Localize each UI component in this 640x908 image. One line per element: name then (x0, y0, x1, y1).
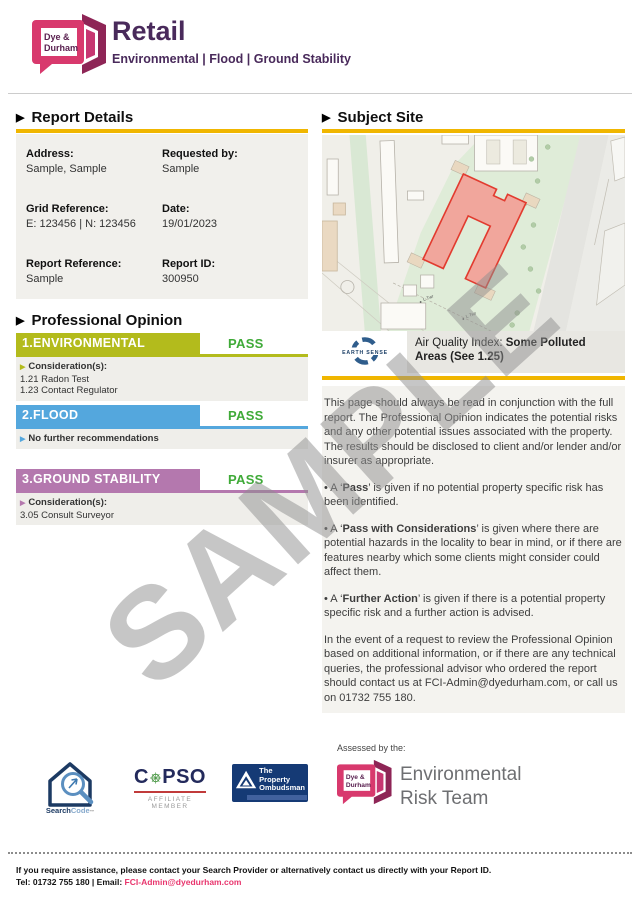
opinion-title: 2.FLOOD (16, 405, 200, 426)
dye-durham-logo-icon: Dye & Durham (32, 12, 108, 76)
note-item: 1.21 Radon Test (20, 374, 302, 386)
header-divider (8, 93, 632, 94)
guidance-bullet-pass-considerations: • A ‘Pass with Considerations’ is given … (324, 522, 623, 580)
field-label: Report Reference: (26, 258, 162, 270)
logo-text-line2: Durham (44, 43, 78, 53)
note-lead: ▶Consideration(s): (20, 497, 302, 510)
field-value: Sample (162, 163, 298, 175)
arrow-right-icon: ▶ (16, 314, 24, 327)
dye-durham-logo: Dye & Durham (32, 12, 108, 81)
status-badge: PASS (200, 469, 308, 490)
air-quality-index: Air Quality Index: Some Polluted Areas (… (407, 331, 625, 373)
opinion-notes-flood: ▶No further recommendations (16, 429, 308, 450)
report-details-heading-label: Report Details (31, 109, 133, 126)
property-ombudsman-top: The Property Ombudsman (235, 767, 305, 793)
opinion-section-environmental: 1.ENVIRONMENTAL PASS ▶Consideration(s): … (16, 333, 308, 401)
guidance-intro: This page should always be read in conju… (324, 396, 623, 469)
searchcode-logo-icon: SearchCode™ (38, 757, 102, 815)
copso-rule (134, 791, 206, 793)
copso-wordmark: C PSO (134, 766, 206, 789)
air-quality-label: Air Quality Index: (415, 337, 506, 349)
property-ombudsman-logo: The Property Ombudsman (232, 764, 308, 802)
earth-sense-logo: EARTH SENSE (322, 331, 407, 373)
field-value: E: 123456 | N: 123456 (26, 218, 162, 230)
field-label: Address: (26, 148, 162, 160)
environmental-risk-team-label: Environmental Risk Team (400, 763, 521, 811)
copso-subtitle: AFFILIATE MEMBER (134, 796, 206, 810)
svg-text:Dye &: Dye & (346, 774, 365, 781)
opinion-bar-ground-stability: 3.GROUND STABILITY PASS (16, 469, 308, 493)
logo-text-line1: Dye & (44, 32, 70, 42)
contact-email-link[interactable]: FCI-Admin@dyedurham.com (125, 877, 242, 887)
property-ombudsman-triangle-icon (235, 769, 257, 791)
subject-site-heading-label: Subject Site (337, 109, 423, 126)
report-details-heading: ▶ Report Details (16, 108, 308, 126)
arrow-right-icon: ▶ (16, 111, 24, 124)
yellow-accent-bar (16, 129, 308, 133)
footer-divider (8, 852, 632, 854)
field-address: Address: Sample, Sample (26, 148, 162, 175)
subject-site-heading: ▶ Subject Site (322, 108, 625, 126)
field-date: Date: 19/01/2023 (162, 203, 298, 230)
footer-fine-print: If you require assistance, please contac… (16, 864, 491, 888)
dye-durham-footer-logo-icon: Dye & Durham (337, 757, 393, 807)
field-grid-reference: Grid Reference: E: 123456 | N: 123456 (26, 203, 162, 230)
guidance-outro: In the event of a request to review the … (324, 633, 623, 706)
field-label: Date: (162, 203, 298, 215)
copso-logo: C PSO AFFILIATE MEMBER (134, 766, 206, 810)
earth-sense-logo-icon: EARTH SENSE (332, 337, 398, 367)
field-label: Report ID: (162, 258, 298, 270)
right-column: ▶ Subject Site (322, 108, 625, 713)
arrow-right-icon: ▶ (20, 364, 25, 371)
opinion-notes-environmental: ▶Consideration(s): 1.21 Radon Test 1.23 … (16, 357, 308, 401)
guidance-bullet-further-action: • A ‘Further Action’ is given if there i… (324, 592, 623, 621)
svg-text:Durham: Durham (346, 782, 371, 789)
opinion-section-ground-stability: 3.GROUND STABILITY PASS ▶Consideration(s… (16, 469, 308, 525)
svg-text:SearchCode™: SearchCode™ (46, 806, 94, 815)
status-badge: PASS (200, 333, 308, 354)
yellow-accent-bar (322, 376, 625, 380)
arrow-right-icon: ▶ (322, 111, 330, 124)
professional-opinion-heading-label: Professional Opinion (31, 312, 182, 329)
page-title: Retail (112, 16, 186, 47)
professional-opinion-heading: ▶ Professional Opinion (16, 311, 308, 329)
searchcode-logo: SearchCode™ (38, 757, 102, 820)
field-label: Grid Reference: (26, 203, 162, 215)
assistance-note: If you require assistance, please contac… (16, 864, 491, 876)
page-subtitle: Environmental | Flood | Ground Stability (112, 52, 351, 66)
arrow-right-icon: ▶ (20, 436, 25, 443)
field-requested-by: Requested by: Sample (162, 148, 298, 175)
arrow-right-icon: ▶ (20, 500, 25, 507)
yellow-accent-bar (322, 129, 625, 133)
field-label: Requested by: (162, 148, 298, 160)
dye-durham-footer-logo: Dye & Durham (337, 757, 393, 812)
field-value: 19/01/2023 (162, 218, 298, 230)
opinion-title: 3.GROUND STABILITY (16, 469, 200, 490)
guidance-bullet-pass: • A ‘Pass’ is given if no potential prop… (324, 481, 623, 510)
property-ombudsman-strip (247, 795, 307, 800)
opinion-bar-environmental: 1.ENVIRONMENTAL PASS (16, 333, 308, 357)
left-column: ▶ Report Details Address: Sample, Sample… (16, 108, 308, 525)
note-item: 3.05 Consult Surveyor (20, 510, 302, 522)
status-badge: PASS (200, 405, 308, 426)
guidance-panel: This page should always be read in conju… (322, 386, 625, 713)
field-report-reference: Report Reference: Sample (26, 258, 162, 285)
copso-compass-icon (150, 771, 161, 785)
property-ombudsman-text: The Property Ombudsman (259, 767, 305, 793)
note-lead: ▶No further recommendations (20, 433, 302, 446)
report-details-box: Address: Sample, Sample Requested by: Sa… (16, 134, 308, 299)
field-report-id: Report ID: 300950 (162, 258, 298, 285)
air-quality-row: EARTH SENSE Air Quality Index: Some Poll… (322, 331, 625, 373)
note-lead: ▶Consideration(s): (20, 361, 302, 374)
assessed-by-label: Assessed by the: (337, 743, 406, 753)
opinion-notes-ground-stability: ▶Consideration(s): 3.05 Consult Surveyor (16, 493, 308, 525)
field-value: Sample (26, 273, 162, 285)
field-value: Sample, Sample (26, 163, 162, 175)
earth-sense-label: EARTH SENSE (342, 350, 388, 356)
subject-site-map: L Twr L Twr (322, 135, 625, 331)
opinion-section-flood: 2.FLOOD PASS ▶No further recommendations (16, 405, 308, 450)
opinion-title: 1.ENVIRONMENTAL (16, 333, 200, 354)
opinion-bar-flood: 2.FLOOD PASS (16, 405, 308, 429)
note-item: 1.23 Contact Regulator (20, 385, 302, 397)
contact-line: Tel: 01732 755 180 | Email: FCI-Admin@dy… (16, 876, 491, 888)
subject-site-map-image: L Twr L Twr (322, 135, 625, 331)
field-value: 300950 (162, 273, 298, 285)
